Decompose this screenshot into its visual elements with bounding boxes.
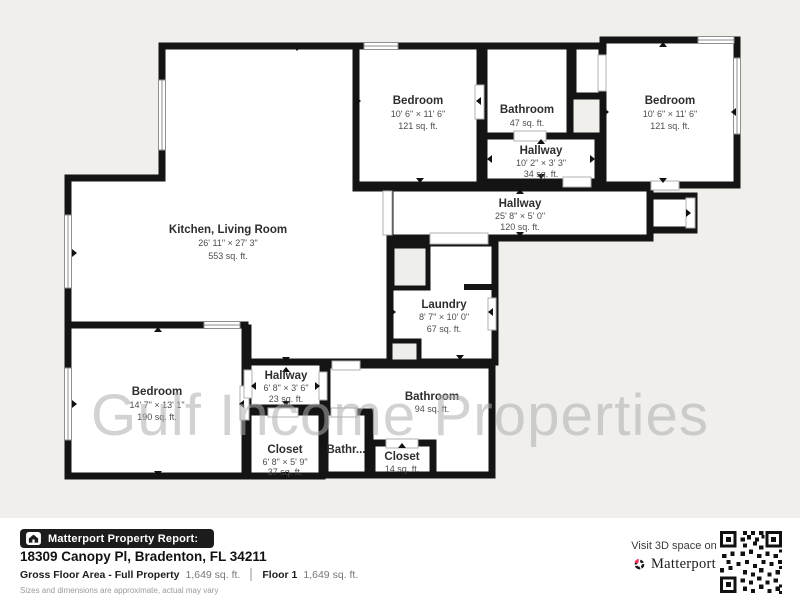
property-address: 18309 Canopy Pl, Bradenton, FL 34211 bbox=[20, 549, 267, 564]
floor-area-metrics: Gross Floor Area - Full Property 1,649 s… bbox=[20, 568, 358, 581]
gross-floor-area-value: 1,649 sq. ft. bbox=[185, 569, 240, 581]
laundry-closet-top bbox=[392, 246, 428, 288]
svg-text:Hallway: Hallway bbox=[499, 198, 542, 210]
svg-text:67 sq. ft.: 67 sq. ft. bbox=[427, 324, 462, 334]
svg-text:Hallway: Hallway bbox=[265, 370, 308, 382]
door bbox=[332, 361, 360, 370]
svg-text:26' 11" × 27' 3": 26' 11" × 27' 3" bbox=[198, 238, 257, 248]
floor-plan: Kitchen, Living Room 26' 11" × 27' 3" 55… bbox=[0, 0, 800, 520]
matterport-wordmark: Matterport bbox=[651, 556, 716, 573]
report-badge: Matterport Property Report: bbox=[20, 529, 214, 548]
svg-text:Hallway: Hallway bbox=[520, 145, 563, 157]
matterport-floor-plan-page: Kitchen, Living Room 26' 11" × 27' 3" 55… bbox=[0, 0, 800, 600]
gross-floor-area-label: Gross Floor Area - Full Property bbox=[20, 569, 179, 581]
door bbox=[383, 191, 392, 235]
svg-text:10' 6" × 11' 6": 10' 6" × 11' 6" bbox=[391, 109, 445, 119]
room-label-bedroom-top-left: Bedroom 10' 6" × 11' 6" 121 sq. ft. bbox=[391, 95, 445, 131]
svg-text:14 sq. ft.: 14 sq. ft. bbox=[385, 464, 420, 474]
svg-text:47 sq. ft.: 47 sq. ft. bbox=[510, 118, 545, 128]
matterport-pinwheel-icon bbox=[632, 557, 647, 572]
svg-text:Bathroom: Bathroom bbox=[500, 104, 554, 116]
matterport-brand: Matterport bbox=[622, 556, 726, 573]
report-footer: Matterport Property Report: 18309 Canopy… bbox=[0, 518, 800, 600]
door bbox=[598, 55, 606, 91]
metrics-divider bbox=[250, 568, 252, 581]
room-kitchen-living bbox=[68, 46, 390, 362]
svg-text:Bedroom: Bedroom bbox=[393, 95, 443, 107]
report-badge-label: Matterport Property Report: bbox=[48, 533, 198, 545]
svg-text:553 sq. ft.: 553 sq. ft. bbox=[208, 251, 248, 261]
svg-text:121 sq. ft.: 121 sq. ft. bbox=[650, 121, 690, 131]
svg-text:8' 7" × 10' 0": 8' 7" × 10' 0" bbox=[419, 312, 469, 322]
svg-text:10' 6" × 11' 6": 10' 6" × 11' 6" bbox=[643, 109, 697, 119]
disclaimer-text: Sizes and dimensions are approximate, ac… bbox=[20, 586, 218, 595]
svg-text:Laundry: Laundry bbox=[421, 299, 467, 311]
floor1-value: 1,649 sq. ft. bbox=[303, 569, 358, 581]
door bbox=[563, 177, 591, 187]
room-label-closet-bottom: Closet 6' 8" × 5' 9" 37 sq. ft. bbox=[262, 444, 307, 477]
door bbox=[651, 181, 679, 190]
visit-3d-text: Visit 3D space on bbox=[622, 540, 726, 552]
room-label-hallway-long: Hallway 25' 8" × 5' 0" 120 sq. ft. bbox=[495, 198, 545, 232]
svg-text:37 sq. ft.: 37 sq. ft. bbox=[268, 467, 303, 477]
svg-text:120 sq. ft.: 120 sq. ft. bbox=[500, 222, 540, 232]
svg-text:10' 2" × 3' 3": 10' 2" × 3' 3" bbox=[516, 158, 566, 168]
door bbox=[430, 233, 488, 244]
floor1-label: Floor 1 bbox=[262, 569, 297, 581]
qr-code bbox=[716, 527, 786, 597]
svg-text:Kitchen, Living Room: Kitchen, Living Room bbox=[169, 224, 287, 236]
svg-text:Bedroom: Bedroom bbox=[645, 95, 695, 107]
house-icon bbox=[26, 532, 41, 545]
laundry-closet-bottom bbox=[390, 341, 419, 362]
svg-text:6' 8" × 5' 9": 6' 8" × 5' 9" bbox=[262, 457, 307, 467]
watermark-text: Gulf Income Properties bbox=[91, 383, 709, 448]
room-label-closet-small: Closet 14 sq. ft. bbox=[384, 451, 419, 474]
svg-text:Closet: Closet bbox=[384, 451, 419, 463]
svg-text:25' 8" × 5' 0": 25' 8" × 5' 0" bbox=[495, 211, 545, 221]
svg-text:121 sq. ft.: 121 sq. ft. bbox=[398, 121, 438, 131]
room-label-bedroom-top-right: Bedroom 10' 6" × 11' 6" 121 sq. ft. bbox=[643, 95, 697, 131]
svg-text:34 sq. ft.: 34 sq. ft. bbox=[524, 169, 559, 179]
